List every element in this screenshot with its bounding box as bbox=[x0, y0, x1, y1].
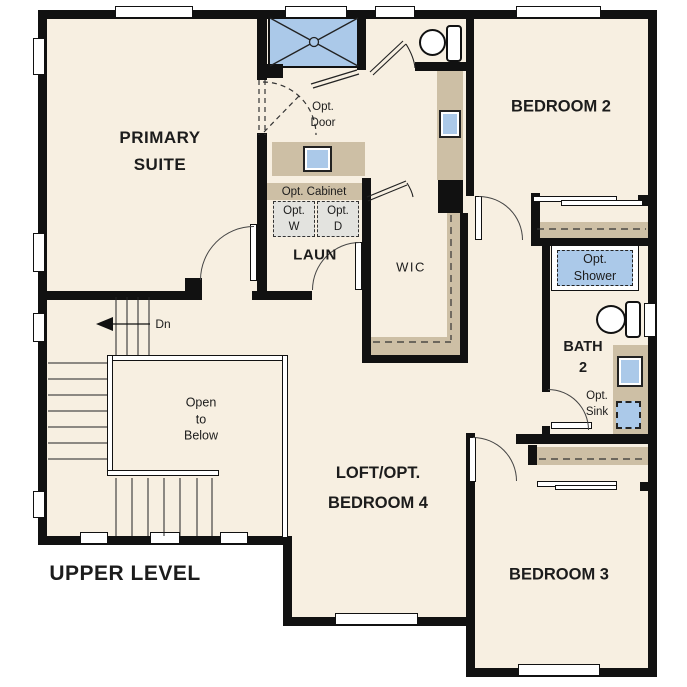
wall-toilet-room-bottom bbox=[415, 62, 467, 71]
opt-dryer-box: Opt. D bbox=[317, 201, 359, 237]
wall-shower-stub bbox=[257, 64, 283, 78]
railing-bottom bbox=[107, 470, 219, 476]
room-label-primary-suite: PRIMARY SUITE bbox=[119, 124, 200, 178]
opt-sink-icon bbox=[616, 401, 641, 429]
room-label-bath2: BATH 2 bbox=[563, 337, 602, 379]
window bbox=[335, 613, 418, 625]
window bbox=[516, 6, 601, 18]
window bbox=[33, 233, 45, 272]
wall-primary-right-lower bbox=[257, 133, 267, 300]
wall-left bbox=[38, 10, 47, 545]
toilet-tank-icon bbox=[625, 301, 641, 338]
window bbox=[80, 532, 108, 544]
opt-sink-label: Opt. Sink bbox=[586, 388, 608, 420]
window bbox=[644, 303, 656, 337]
window bbox=[33, 313, 45, 342]
window bbox=[518, 664, 600, 676]
wall-bath2-bottom bbox=[516, 434, 657, 444]
wall-primary-bottom bbox=[38, 291, 198, 300]
wall-primary-bottom-jog bbox=[185, 278, 202, 300]
window bbox=[33, 491, 45, 518]
floor-bedroom3-lower bbox=[475, 617, 648, 668]
wall-shower-toilet-divider bbox=[357, 10, 366, 70]
window bbox=[33, 38, 45, 75]
wall-bedroom2-closet-bottom bbox=[531, 238, 657, 246]
wall-wic-right bbox=[460, 213, 468, 359]
opt-washer-box: Opt. W bbox=[273, 201, 315, 237]
wall-right bbox=[648, 10, 657, 677]
wall-pier-closet3-right bbox=[640, 482, 649, 491]
wall-pier-wic-top bbox=[438, 180, 463, 213]
wall-laundry-bottom bbox=[252, 291, 312, 300]
opt-door-label: Opt. Door bbox=[311, 99, 336, 131]
room-label-bedroom3: BEDROOM 3 bbox=[509, 566, 609, 585]
window bbox=[285, 6, 347, 18]
room-label-laundry: LAUN bbox=[293, 247, 337, 264]
window bbox=[115, 6, 193, 18]
wall-bath2-left bbox=[542, 246, 550, 392]
opt-washer-label: Opt. W bbox=[283, 203, 305, 235]
window bbox=[375, 6, 415, 18]
window bbox=[150, 532, 180, 544]
sink-icon bbox=[439, 110, 461, 138]
sink-icon bbox=[303, 146, 332, 172]
room-label-bedroom2: BEDROOM 2 bbox=[511, 98, 611, 117]
toilet-icon bbox=[596, 305, 626, 334]
wic-shelf-bottom bbox=[371, 337, 463, 357]
wall-pier-closet3-left bbox=[528, 445, 537, 465]
opt-shower-label: Opt. Shower bbox=[574, 251, 616, 285]
wall-bedroom2-left bbox=[466, 10, 474, 196]
plan-title: UPPER LEVEL bbox=[49, 562, 200, 586]
stairs-down-label: Dn bbox=[155, 317, 170, 331]
room-label-loft: LOFT/OPT. BEDROOM 4 bbox=[328, 458, 428, 518]
bedroom3-closet-shelf bbox=[537, 447, 648, 465]
wall-wic-left bbox=[362, 178, 371, 363]
toilet-tank-icon bbox=[446, 25, 462, 62]
railing-right bbox=[282, 355, 288, 538]
open-to-below-label: Open to Below bbox=[184, 394, 218, 444]
railing-left bbox=[107, 355, 113, 476]
floor-plan: Opt. W Opt. D bbox=[0, 0, 687, 687]
room-label-wic: WIC bbox=[396, 260, 426, 275]
opt-cabinet-label: Opt. Cabinet bbox=[282, 186, 347, 198]
shower-icon bbox=[268, 16, 360, 68]
opt-dryer-label: Opt. D bbox=[327, 203, 349, 235]
bath2-sink-icon bbox=[617, 356, 643, 387]
closet-shelf-line bbox=[555, 485, 617, 490]
wall-wic-bottom bbox=[362, 355, 468, 363]
bedroom2-closet-shelf bbox=[535, 222, 648, 238]
closet-shelf-line bbox=[561, 200, 643, 206]
wall-step bbox=[283, 536, 292, 626]
toilet-icon bbox=[419, 29, 446, 56]
window bbox=[220, 532, 248, 544]
railing-top bbox=[107, 355, 288, 361]
